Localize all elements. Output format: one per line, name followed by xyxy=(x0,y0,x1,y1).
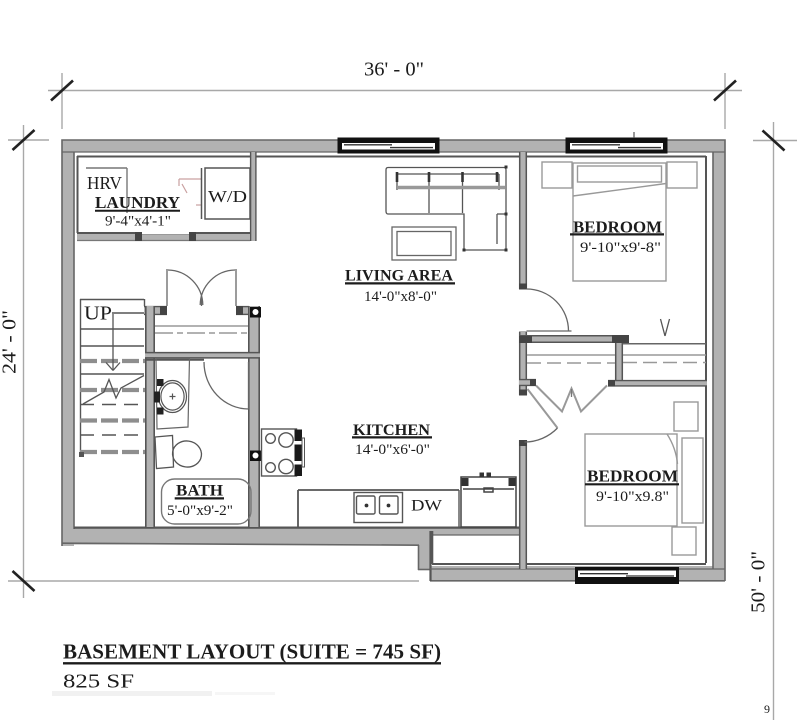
svg-text:5'-0"x9'-2": 5'-0"x9'-2" xyxy=(167,503,233,519)
svg-text:9: 9 xyxy=(764,702,770,716)
svg-text:DW: DW xyxy=(411,498,442,515)
svg-text:50' - 0": 50' - 0" xyxy=(748,551,770,613)
svg-text:825 SF: 825 SF xyxy=(63,671,134,693)
svg-text:W/D: W/D xyxy=(208,187,247,206)
svg-text:36' - 0": 36' - 0" xyxy=(364,59,424,81)
svg-text:14'-0"x6'-0": 14'-0"x6'-0" xyxy=(355,442,430,458)
svg-text:HRV: HRV xyxy=(87,173,122,193)
svg-text:14'-0"x8'-0": 14'-0"x8'-0" xyxy=(364,289,437,305)
svg-text:LIVING AREA: LIVING AREA xyxy=(345,268,454,285)
svg-text:BATH: BATH xyxy=(176,483,224,500)
svg-text:UP: UP xyxy=(84,304,112,325)
svg-text:9'-10"x9.8": 9'-10"x9.8" xyxy=(596,489,669,505)
svg-text:24' - 0": 24' - 0" xyxy=(0,310,21,374)
svg-text:BASEMENT LAYOUT (SUITE = 745 S: BASEMENT LAYOUT (SUITE = 745 SF) xyxy=(63,640,441,664)
svg-text:LAUNDRY: LAUNDRY xyxy=(95,193,180,212)
svg-text:BEDROOM: BEDROOM xyxy=(587,467,678,486)
svg-text:9'-4"x4'-1": 9'-4"x4'-1" xyxy=(105,214,171,230)
svg-text:9'-10"x9'-8": 9'-10"x9'-8" xyxy=(580,240,661,256)
